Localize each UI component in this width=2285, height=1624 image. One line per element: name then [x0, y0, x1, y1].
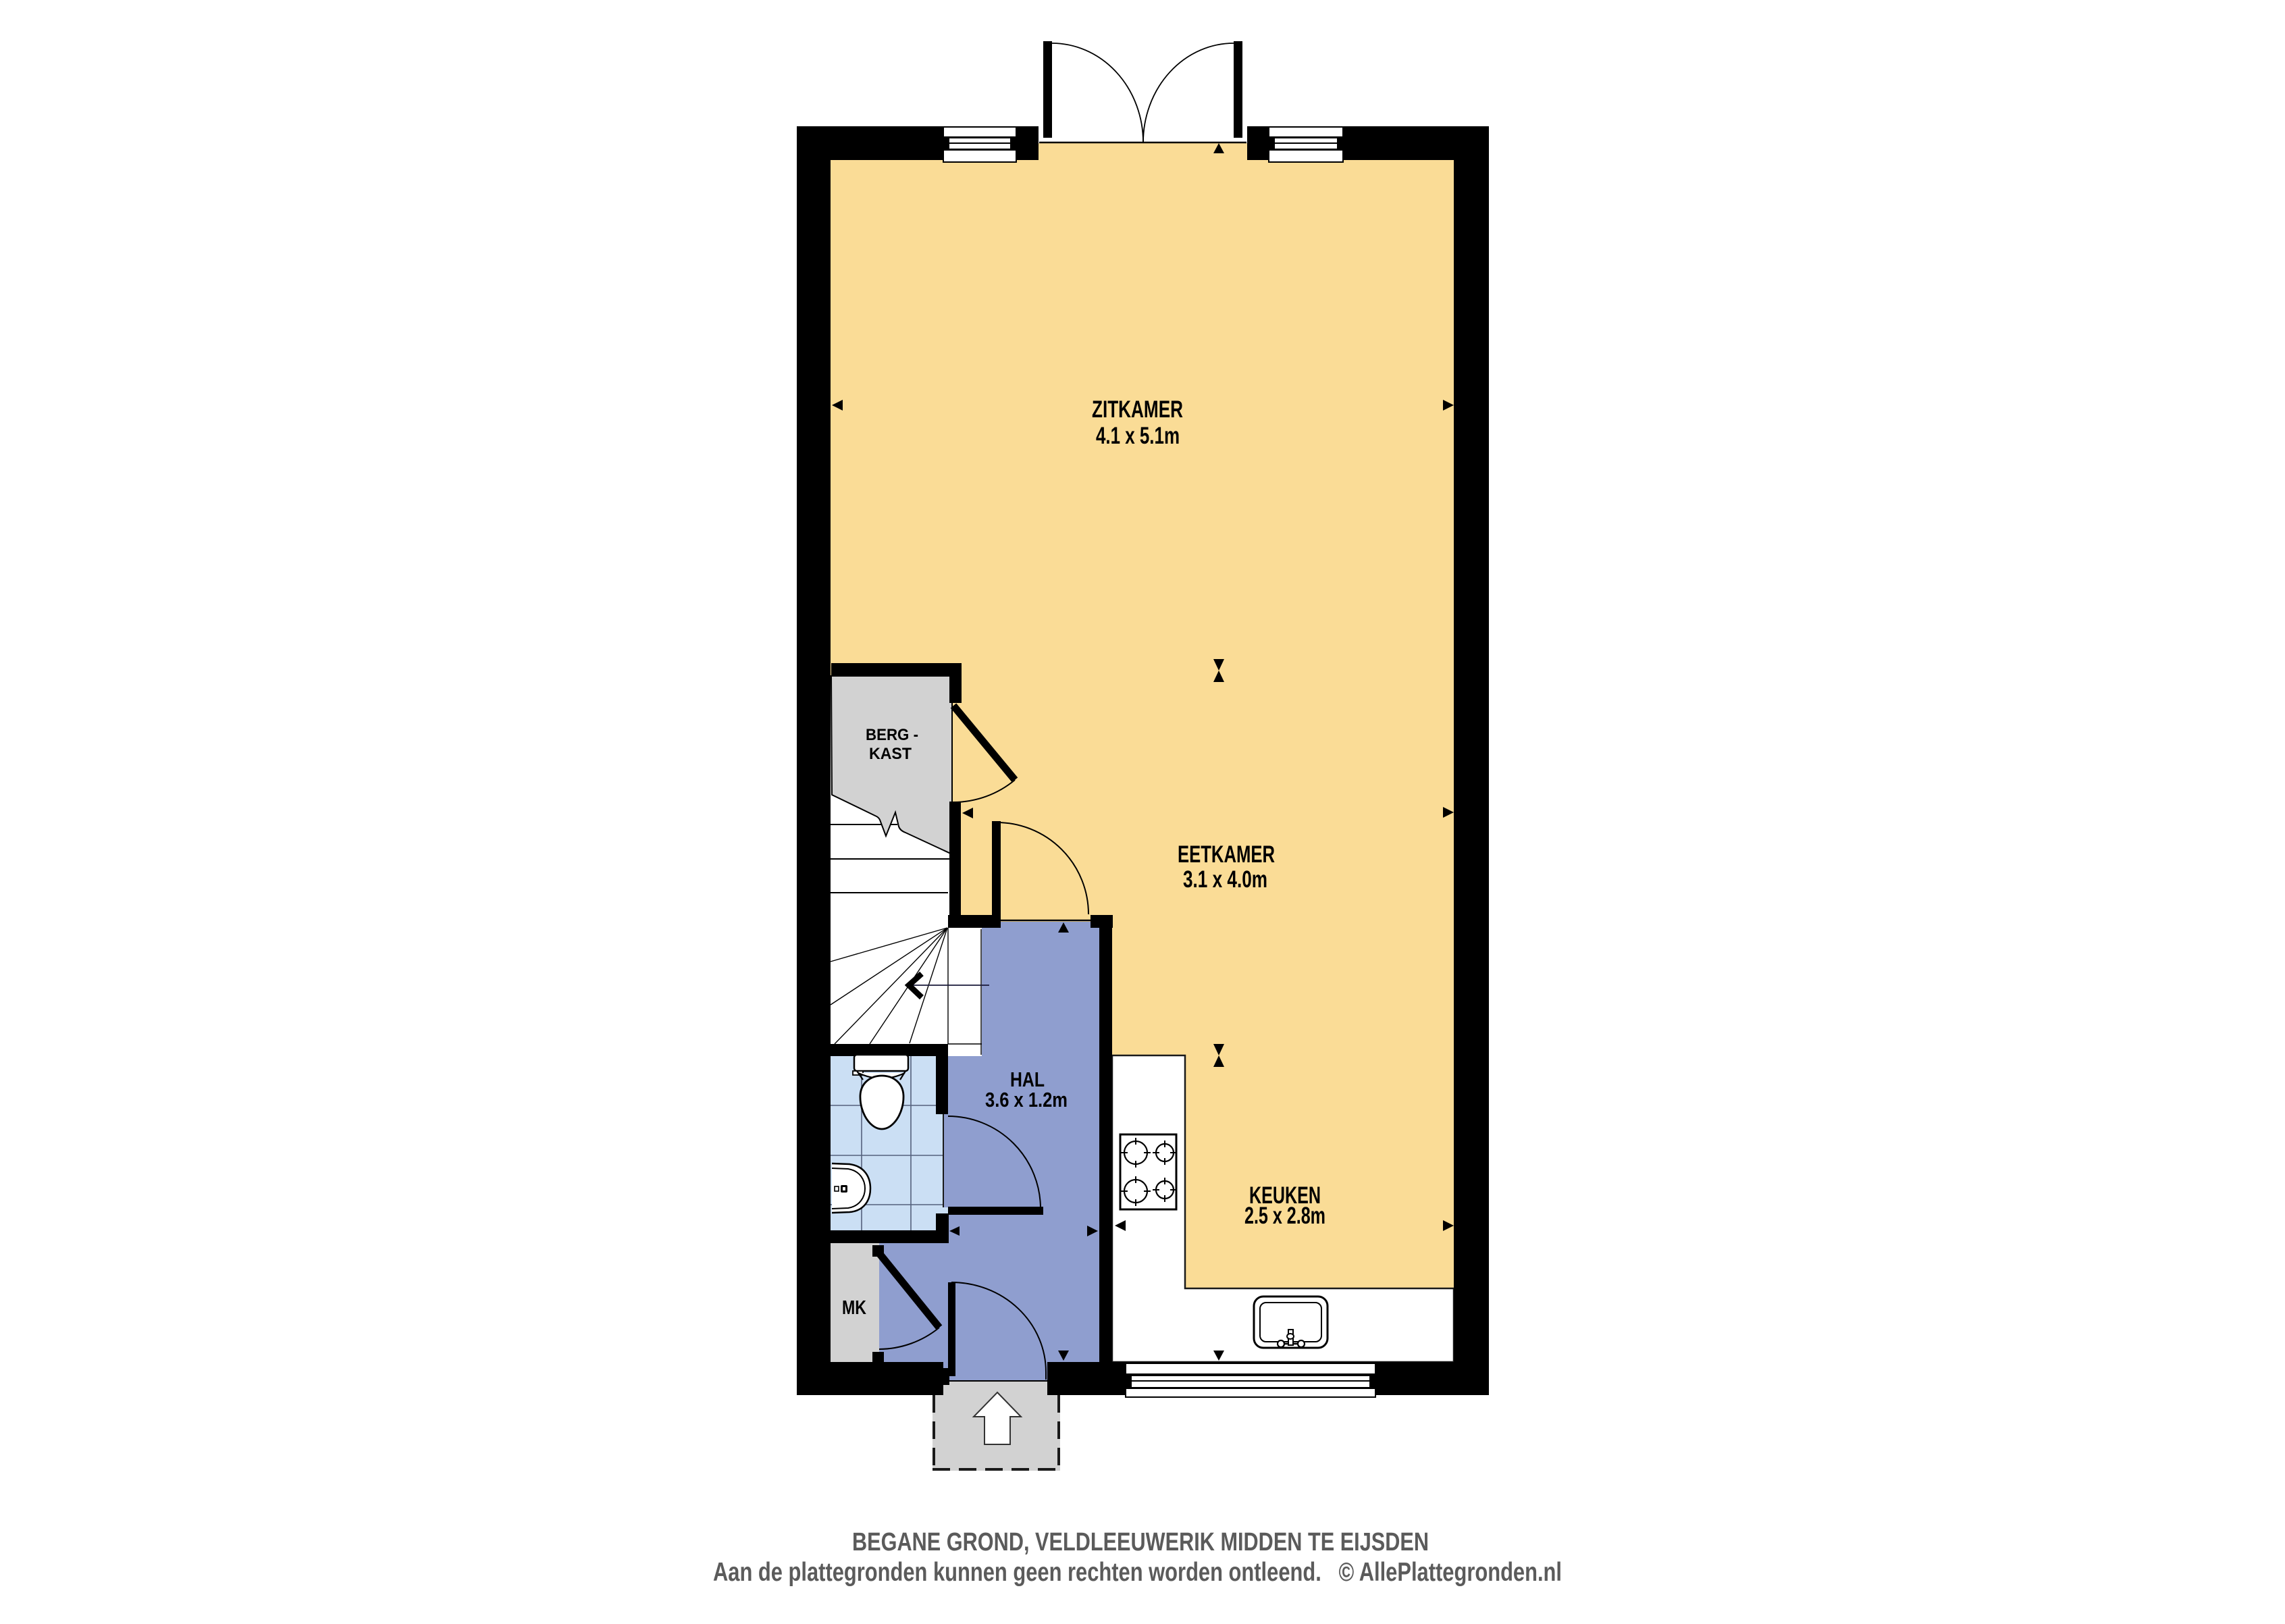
- svg-text:Aan de plattegronden kunnen ge: Aan de plattegronden kunnen geen rechten…: [713, 1558, 1562, 1587]
- svg-text:2.5 x 2.8m: 2.5 x 2.8m: [1244, 1203, 1325, 1229]
- svg-text:EETKAMER: EETKAMER: [1178, 841, 1275, 868]
- svg-text:4.1 x 5.1m: 4.1 x 5.1m: [1096, 423, 1180, 449]
- svg-text:MK: MK: [842, 1297, 866, 1319]
- svg-text:KAST: KAST: [869, 745, 912, 763]
- svg-text:ZITKAMER: ZITKAMER: [1092, 396, 1183, 423]
- svg-text:3.6 x 1.2m: 3.6 x 1.2m: [985, 1088, 1068, 1111]
- svg-text:BERG -: BERG -: [866, 726, 918, 744]
- svg-text:BEGANE GROND, VELDLEEUWERIK MI: BEGANE GROND, VELDLEEUWERIK MIDDEN TE EI…: [852, 1528, 1429, 1556]
- svg-text:3.1 x 4.0m: 3.1 x 4.0m: [1183, 866, 1267, 893]
